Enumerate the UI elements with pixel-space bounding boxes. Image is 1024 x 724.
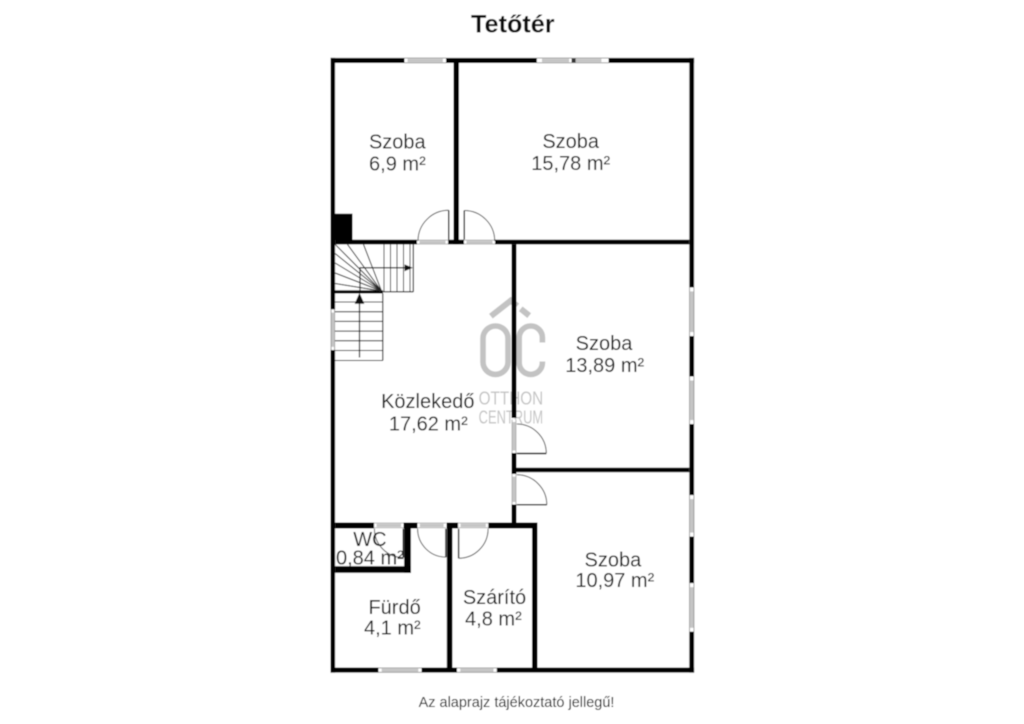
svg-text:Szárító: Szárító	[463, 587, 526, 609]
svg-text:4,8 m²: 4,8 m²	[465, 608, 522, 630]
svg-text:13,89 m²: 13,89 m²	[565, 355, 644, 377]
svg-text:Az alaprajz tájékoztató jelleg: Az alaprajz tájékoztató jellegű!	[419, 695, 615, 711]
svg-text:Közlekedő: Közlekedő	[381, 391, 474, 413]
svg-text:0,84 m²: 0,84 m²	[336, 547, 404, 569]
svg-text:17,62 m²: 17,62 m²	[389, 413, 468, 435]
svg-text:15,78 m²: 15,78 m²	[531, 153, 610, 175]
svg-text:4,1 m²: 4,1 m²	[364, 618, 421, 640]
svg-text:Szoba: Szoba	[576, 333, 634, 355]
svg-text:Szoba: Szoba	[369, 132, 427, 154]
svg-text:Szoba: Szoba	[585, 549, 643, 571]
svg-text:10,97 m²: 10,97 m²	[575, 570, 654, 592]
svg-text:Fürdő: Fürdő	[368, 597, 420, 619]
svg-text:CENTRUM: CENTRUM	[479, 406, 544, 427]
svg-text:6,9 m²: 6,9 m²	[369, 153, 426, 175]
svg-text:Szoba: Szoba	[542, 131, 600, 153]
svg-text:Tetőtér: Tetőtér	[471, 11, 555, 39]
